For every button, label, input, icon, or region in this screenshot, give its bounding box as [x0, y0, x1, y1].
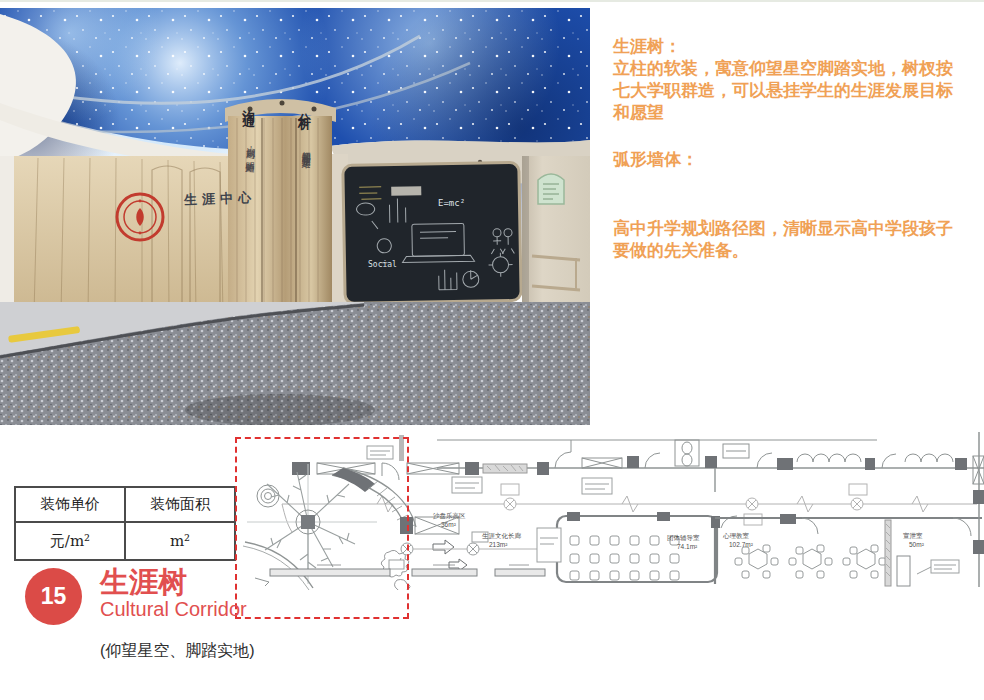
table-cell-unit-price: 元/m²	[15, 522, 125, 560]
annotation-text-block: 生涯树： 立柱的软装，寓意仰望星空脚踏实地，树杈按 七大学职群造，可以悬挂学生的…	[613, 36, 984, 262]
room-label-psych-name: 心理教室	[723, 532, 750, 540]
room-label-group-name: 团体辅导室	[667, 534, 700, 542]
annotation-line: 要做的先关准备。	[613, 240, 984, 262]
decoration-spec-table: 装饰单价 装饰面积 元/m² m²	[14, 486, 236, 561]
room-label-sandbox-area: 36m²	[441, 521, 457, 528]
annotation-line: 弧形墙体：	[613, 149, 984, 171]
table-cell-area: m²	[125, 522, 235, 560]
plan-highlight-box	[235, 437, 409, 619]
annotation-line: 和愿望	[613, 102, 984, 124]
plan-right-wall	[973, 432, 984, 587]
annotation-curved-wall: 弧形墙体：	[613, 149, 984, 171]
annotation-line: 七大学职群造，可以悬挂学生的生涯发展目标	[613, 80, 984, 102]
slide-page: 沟通 识别问题，明确差距 分析 把问题相互联系起来 生涯中心 E=mc² Soc…	[0, 0, 984, 700]
top-divider	[0, 0, 984, 2]
page-subtitle: Cultural Corridor	[100, 598, 247, 621]
room-label-corridor-name: 生涯文化长廊	[482, 532, 522, 540]
annotation-line: 立柱的软装，寓意仰望星空脚踏实地，树杈按	[613, 58, 984, 80]
annotation-path-map: 高中升学规划路径图，清晰显示高中学段孩子 要做的先关准备。	[613, 218, 984, 262]
chalkboard-wall	[343, 162, 549, 304]
room-label-group-area: 74.1m²	[677, 543, 698, 550]
annotation-line: 生涯树：	[613, 36, 984, 58]
table-header-unit-price: 装饰单价	[15, 487, 125, 522]
table-header-area: 装饰面积	[125, 487, 235, 522]
page-title: 生涯树	[100, 563, 187, 603]
page-tagline: (仰望星空、脚踏实地)	[100, 641, 255, 662]
item-number-badge: 15	[25, 568, 82, 625]
room-label-corridor-area: 213m²	[489, 541, 508, 548]
terrazzo-floor	[0, 302, 590, 425]
interior-render-art	[0, 8, 590, 425]
plan-flow-arrows	[433, 540, 467, 571]
wood-wall	[0, 156, 230, 316]
room-label-venting-area: 50m²	[909, 541, 925, 548]
career-center-logo	[117, 194, 163, 240]
room-label-sandbox-name: 沙盘乐高区	[433, 512, 466, 520]
interior-render-image: 沟通 识别问题，明确差距 分析 把问题相互联系起来 生涯中心 E=mc² Soc…	[0, 8, 590, 425]
annotation-career-tree: 生涯树： 立柱的软装，寓意仰望星空脚踏实地，树杈按 七大学职群造，可以悬挂学生的…	[613, 36, 984, 124]
room-label-venting-name: 宣泄室	[903, 532, 923, 540]
room-label-psych-area: 102.7m²	[729, 541, 754, 548]
annotation-line: 高中升学规划路径图，清晰显示高中学段孩子	[613, 218, 984, 240]
